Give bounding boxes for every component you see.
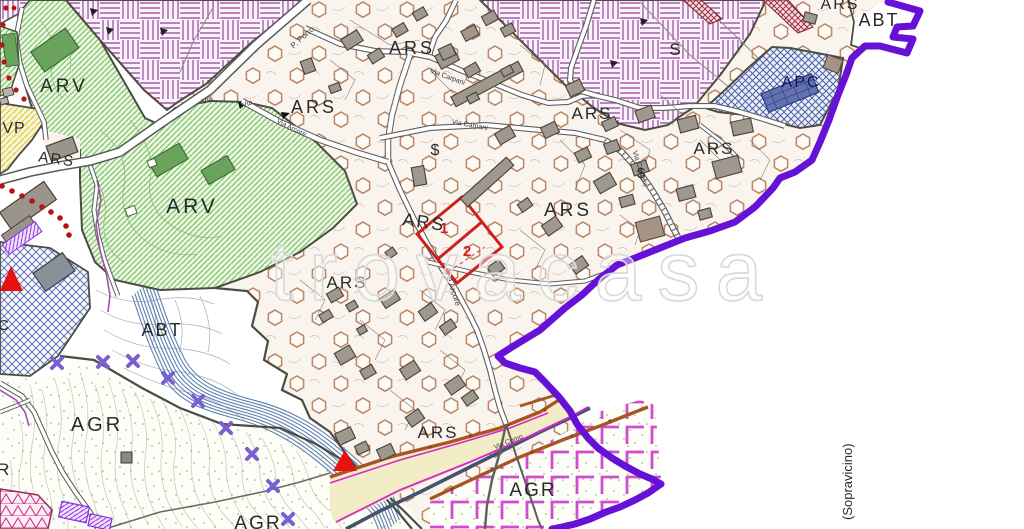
- svg-text:AGR: AGR: [71, 414, 123, 436]
- svg-text:ARS: ARS: [572, 104, 613, 123]
- svg-text:ARV: ARV: [40, 76, 88, 97]
- svg-text:AGR: AGR: [509, 480, 556, 501]
- svg-text:ARS: ARS: [418, 423, 459, 442]
- svg-text:R: R: [0, 460, 9, 479]
- svg-text:C: C: [0, 317, 9, 334]
- svg-text:APC: APC: [782, 74, 821, 91]
- svg-text:ARS: ARS: [821, 0, 860, 13]
- svg-text:ARS: ARS: [544, 200, 592, 221]
- svg-text:(Sopravicino): (Sopravicino): [840, 443, 855, 520]
- svg-text:ABT: ABT: [141, 320, 182, 340]
- svg-text:S: S: [669, 40, 680, 59]
- svg-text:AGR: AGR: [234, 513, 281, 529]
- svg-text:ABT: ABT: [858, 10, 899, 30]
- svg-text:ARS: ARS: [291, 97, 337, 117]
- svg-text:trovacasa: trovacasa: [270, 224, 778, 318]
- svg-text:ARS: ARS: [389, 38, 435, 58]
- svg-text:VP: VP: [2, 120, 25, 137]
- svg-text:$: $: [431, 142, 440, 159]
- svg-text:ARV: ARV: [166, 195, 218, 218]
- svg-text:ARS: ARS: [694, 139, 735, 158]
